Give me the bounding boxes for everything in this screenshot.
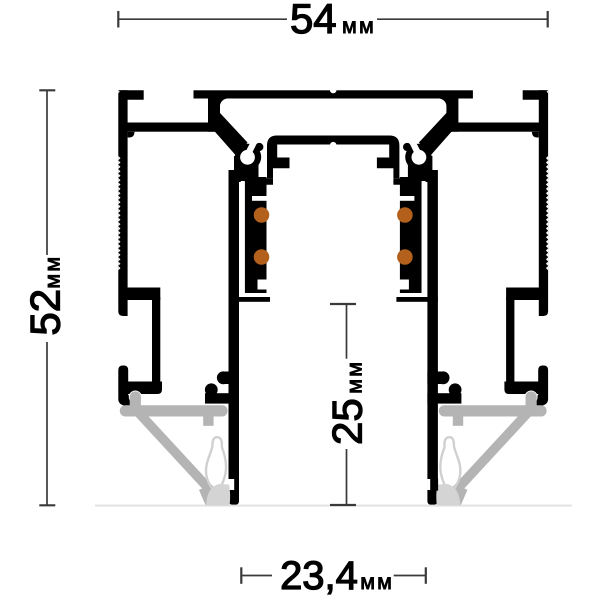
svg-text:мм: мм (342, 14, 376, 38)
svg-text:мм: мм (360, 570, 394, 594)
svg-text:мм: мм (343, 360, 367, 394)
svg-text:мм: мм (41, 255, 65, 289)
svg-text:52: 52 (22, 289, 69, 336)
svg-text:25: 25 (324, 398, 371, 445)
svg-text:23,4: 23,4 (280, 554, 358, 598)
svg-text:54: 54 (290, 0, 337, 42)
